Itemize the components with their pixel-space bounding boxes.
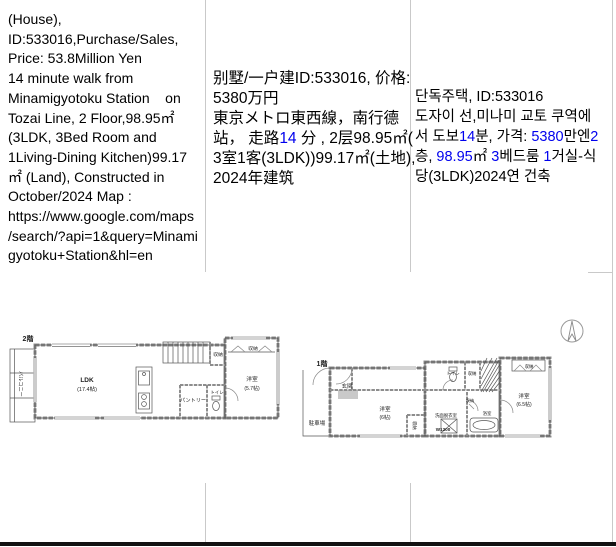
plan2f-ldk-size: (17.4帖) — [77, 385, 97, 393]
plan1f-closet-mid-label: 収納 — [466, 397, 474, 404]
plan2f-balcony-label: バルコニー — [17, 371, 24, 397]
property-listing-table: (House),ID:533016,Purchase/Sales,Price: … — [0, 0, 616, 547]
plan1f-w1200-label: W1200 — [436, 427, 451, 432]
plan1f-title: 1階 — [317, 359, 328, 368]
compass-icon — [561, 320, 583, 342]
plan2f-room-size: (5.7帖) — [244, 385, 260, 392]
floor-plan-1f: 1階 玄関 駐車場 洋室 (6帖) 収納 トイレ 収納 収納 洗面脱衣室 W12… — [303, 358, 552, 438]
plan1f-closet-top-label: 収納 — [468, 370, 477, 377]
plan2f-ldk-label: LDK — [80, 377, 94, 384]
plan1f-room1-label: 洋室 — [379, 405, 391, 413]
plan1f-toilet-label: トイレ — [446, 371, 459, 376]
plan1f-room2-label: 洋室 — [518, 392, 530, 400]
plan2f-room-label: 洋室 — [246, 375, 258, 383]
plan2f-toilet-label: トイレ — [210, 390, 223, 395]
floorplan-image: 2階 バルコニー LDK (17.4帖) パントリー トイレ 収納 収納 洋室 … — [0, 0, 616, 547]
plan2f-closet1-label: 収納 — [213, 351, 223, 358]
plan1f-room2-closet-label: 収納 — [525, 363, 534, 370]
plan1f-washroom-label: 洗面脱衣室 — [435, 412, 458, 419]
plan1f-entrance-label: 玄関 — [342, 382, 353, 390]
plan2f-closet2-label: 収納 — [248, 345, 258, 352]
plan1f-parking-label: 駐車場 — [309, 419, 326, 427]
plan1f-room1-closet-label: 収納 — [411, 421, 418, 430]
plan2f-title: 2階 — [23, 334, 34, 343]
plan1f-room2-size: (6.5帖) — [516, 401, 532, 408]
entrance-mat — [338, 390, 358, 399]
plan2f-pantry-label: パントリー — [180, 397, 206, 404]
plan1f-room1-size: (6帖) — [379, 414, 390, 421]
plan1f-bath-label: 浴室 — [483, 410, 492, 417]
floor-plan-2f: 2階 バルコニー LDK (17.4帖) パントリー トイレ 収納 収納 洋室 … — [10, 334, 280, 422]
